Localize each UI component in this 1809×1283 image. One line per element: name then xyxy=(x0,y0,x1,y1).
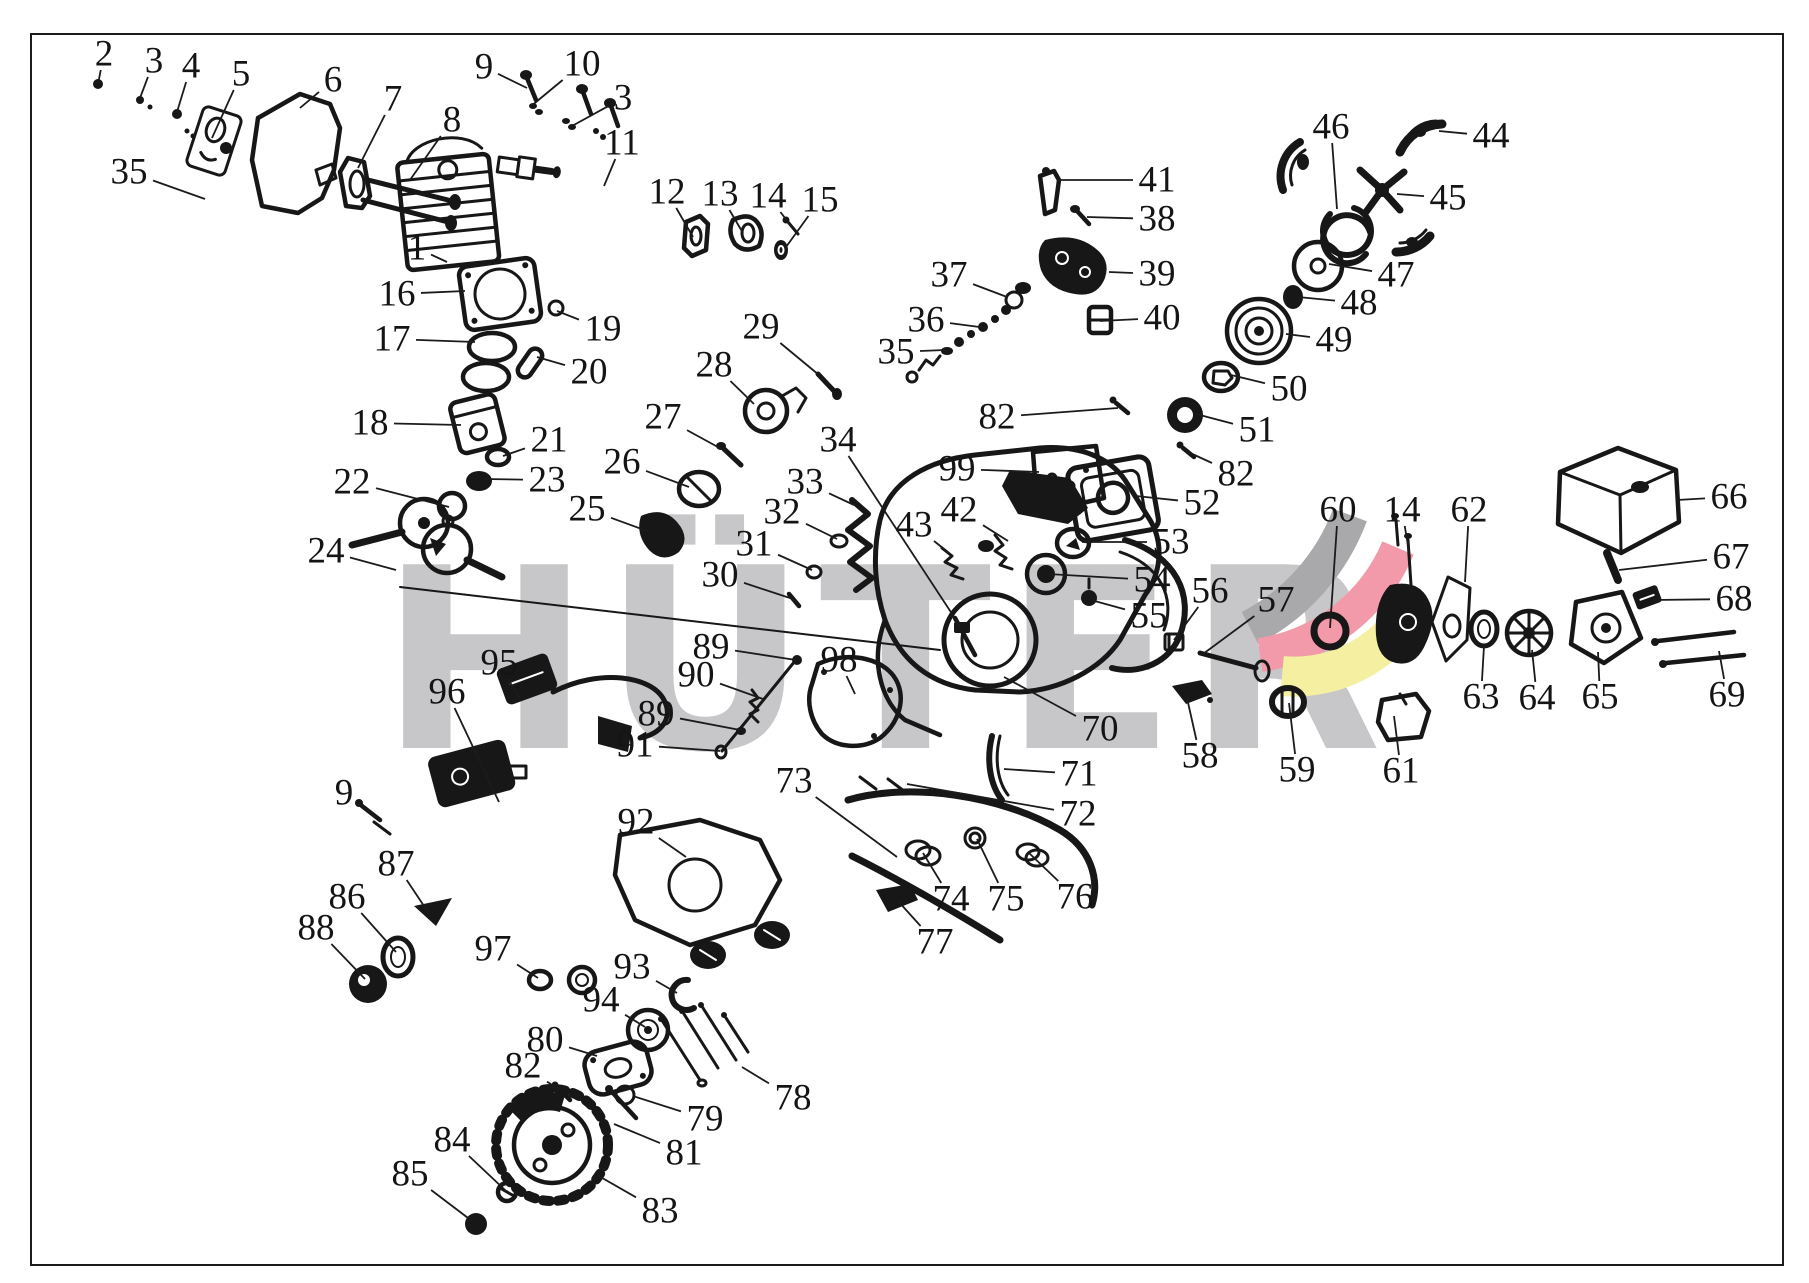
part-label-71: 71 xyxy=(1061,756,1098,793)
part-label-99: 99 xyxy=(939,451,976,488)
part-label-12: 12 xyxy=(649,174,686,211)
part-label-27: 27 xyxy=(645,399,682,436)
part-label-90: 90 xyxy=(678,657,715,694)
part-label-15: 15 xyxy=(802,182,839,219)
part-label-36: 36 xyxy=(908,302,945,339)
part-label-76: 76 xyxy=(1057,879,1094,916)
part-labels: 2345678910311121314151161719201821232224… xyxy=(0,0,1809,1283)
part-label-72: 72 xyxy=(1060,796,1097,833)
part-label-47: 47 xyxy=(1378,257,1415,294)
part-label-57: 57 xyxy=(1258,582,1295,619)
part-label-77: 77 xyxy=(917,924,954,961)
part-label-42: 42 xyxy=(941,492,978,529)
part-label-23: 23 xyxy=(529,462,566,499)
part-label-3: 3 xyxy=(145,43,164,80)
part-label-82: 82 xyxy=(1218,456,1255,493)
part-label-39: 39 xyxy=(1139,256,1176,293)
part-label-14: 14 xyxy=(750,178,787,215)
part-label-52: 52 xyxy=(1184,485,1221,522)
part-label-88: 88 xyxy=(298,910,335,947)
part-label-38: 38 xyxy=(1139,201,1176,238)
part-label-96: 96 xyxy=(429,674,466,711)
part-label-83: 83 xyxy=(642,1193,679,1230)
part-label-92: 92 xyxy=(618,804,655,841)
part-label-10: 10 xyxy=(564,46,601,83)
part-label-87: 87 xyxy=(378,846,415,883)
part-label-98: 98 xyxy=(821,642,858,679)
part-label-1: 1 xyxy=(408,230,427,267)
part-label-55: 55 xyxy=(1131,598,1168,635)
part-label-46: 46 xyxy=(1313,109,1350,146)
part-label-91: 91 xyxy=(617,727,654,764)
part-label-5: 5 xyxy=(232,56,251,93)
part-label-24: 24 xyxy=(308,533,345,570)
part-label-81: 81 xyxy=(666,1135,703,1172)
part-label-53: 53 xyxy=(1153,524,1190,561)
part-label-48: 48 xyxy=(1341,285,1378,322)
part-label-9: 9 xyxy=(335,775,354,812)
part-label-58: 58 xyxy=(1182,738,1219,775)
part-label-18: 18 xyxy=(352,405,389,442)
part-label-56: 56 xyxy=(1192,573,1229,610)
part-label-35: 35 xyxy=(111,154,148,191)
part-label-85: 85 xyxy=(392,1156,429,1193)
part-label-84: 84 xyxy=(434,1122,471,1159)
part-label-75: 75 xyxy=(988,881,1025,918)
part-label-7: 7 xyxy=(384,81,403,118)
part-label-63: 63 xyxy=(1463,679,1500,716)
part-label-49: 49 xyxy=(1316,322,1353,359)
part-label-94: 94 xyxy=(583,982,620,1019)
part-label-25: 25 xyxy=(569,491,606,528)
part-label-67: 67 xyxy=(1713,539,1750,576)
part-label-22: 22 xyxy=(334,464,371,501)
part-label-59: 59 xyxy=(1279,752,1316,789)
part-label-95: 95 xyxy=(481,645,518,682)
part-label-26: 26 xyxy=(604,444,641,481)
part-label-19: 19 xyxy=(585,311,622,348)
part-label-11: 11 xyxy=(604,125,640,162)
part-label-97: 97 xyxy=(475,931,512,968)
part-label-64: 64 xyxy=(1519,680,1556,717)
part-label-74: 74 xyxy=(933,881,970,918)
exploded-parts-diagram: HÜTER xyxy=(0,0,1809,1283)
part-label-2: 2 xyxy=(95,36,114,73)
part-label-9: 9 xyxy=(475,49,494,86)
part-label-62: 62 xyxy=(1451,492,1488,529)
part-label-78: 78 xyxy=(775,1080,812,1117)
part-label-60: 60 xyxy=(1320,492,1357,529)
part-label-29: 29 xyxy=(743,309,780,346)
part-label-61: 61 xyxy=(1383,753,1420,790)
part-label-4: 4 xyxy=(182,48,201,85)
part-label-37: 37 xyxy=(931,257,968,294)
part-label-17: 17 xyxy=(374,321,411,358)
part-label-44: 44 xyxy=(1473,118,1510,155)
part-label-13: 13 xyxy=(702,176,739,213)
part-label-82: 82 xyxy=(979,399,1016,436)
part-label-65: 65 xyxy=(1582,679,1619,716)
part-label-14: 14 xyxy=(1384,492,1421,529)
part-label-41: 41 xyxy=(1139,162,1176,199)
part-label-40: 40 xyxy=(1144,300,1181,337)
part-label-51: 51 xyxy=(1239,412,1276,449)
part-label-20: 20 xyxy=(571,354,608,391)
part-label-6: 6 xyxy=(324,62,343,99)
part-label-43: 43 xyxy=(896,507,933,544)
part-label-8: 8 xyxy=(443,102,462,139)
part-label-31: 31 xyxy=(736,526,773,563)
part-label-45: 45 xyxy=(1430,180,1467,217)
part-label-21: 21 xyxy=(531,422,568,459)
part-label-54: 54 xyxy=(1134,562,1171,599)
part-label-69: 69 xyxy=(1709,677,1746,714)
part-label-3: 3 xyxy=(614,80,633,117)
part-label-82: 82 xyxy=(505,1048,542,1085)
part-label-50: 50 xyxy=(1271,371,1308,408)
part-label-28: 28 xyxy=(696,347,733,384)
part-label-30: 30 xyxy=(702,557,739,594)
part-label-68: 68 xyxy=(1716,581,1753,618)
part-label-34: 34 xyxy=(820,422,857,459)
part-label-66: 66 xyxy=(1711,479,1748,516)
part-label-70: 70 xyxy=(1082,711,1119,748)
part-label-73: 73 xyxy=(776,763,813,800)
part-label-16: 16 xyxy=(379,276,416,313)
